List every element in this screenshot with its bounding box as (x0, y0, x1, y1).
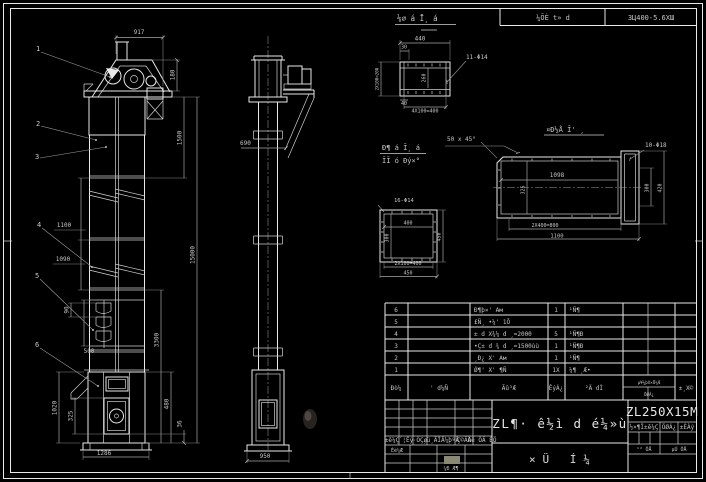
holes-label-16phi14: 16-Φ14 (394, 198, 415, 204)
detail-plate: ¤Ð½Å Ī' ¸ 50 x 45° 1098 325 300 420 2X40… (445, 125, 667, 241)
bom-row-name: ¸Ð¿ X' Ам (474, 355, 507, 362)
bom-header-name: Ãû³Æ (502, 385, 517, 392)
bom-row-name: ± d X¾¼ d ¸=2000 (474, 331, 532, 338)
dim-1090: 1090 (56, 256, 71, 263)
bom-row-qty: 1 (554, 343, 558, 350)
bom-row-qty: 5 (554, 331, 558, 338)
dim-300-plate: 300 (645, 183, 651, 192)
balloon-5: 5 (35, 272, 39, 280)
bom-row-qty: 1X (552, 367, 560, 374)
weight-label: ÖØÁ¿ (662, 424, 676, 431)
bom-row-name: Ð¶þ×' Ам (474, 307, 503, 314)
header-mid-cell: ¼ÕÈ t» d (536, 13, 570, 22)
balloon-callouts: 1 2 3 4 5 6 (35, 45, 111, 387)
bom-row-material: ¹Ñ¶Ð (569, 331, 584, 338)
model-number: ZL250X15M (626, 404, 698, 419)
bom-row-no: 4 (394, 331, 398, 338)
dim-3300: 3300 (154, 332, 161, 347)
side-view: 950 690 (240, 36, 317, 463)
dim-400: 400 (403, 221, 412, 227)
square-caption-1: Ð¶ á Ī¸ á (382, 143, 420, 152)
dim-bot1: 2X100=400 (394, 261, 421, 267)
scale-label: ±ÈÀý (680, 423, 695, 431)
dim-36: 36 (177, 420, 184, 428)
holes-label-11phi14: 11-Φ14 (466, 54, 488, 61)
dim-bot2: 450 (403, 271, 412, 277)
dim-950: 950 (260, 453, 271, 460)
square-caption-2: ĪĪ ó Ðý×° (382, 156, 420, 165)
dim-917: 917 (134, 29, 145, 36)
dim-260: 260 (422, 73, 428, 82)
dim-325: 325 (68, 410, 75, 421)
check-label: ¼Ð Æ¶ (443, 466, 458, 472)
detail-square: Ð¶ á Ī¸ á ĪĪ ó Ðý×° 16-Φ14 400 300 450 2… (378, 143, 446, 278)
bom-header-code: ' d¼Ñ (430, 385, 448, 392)
dim-1100: 1100 (57, 222, 72, 229)
balloon-2: 2 (36, 120, 40, 128)
dim-1500: 1500 (177, 130, 184, 145)
dim-420: 420 (658, 183, 664, 192)
bom-row-no: 3 (394, 343, 398, 350)
view-label: ⅛∅ á Ī¸ á (397, 14, 438, 23)
dim-1100-plate: 1100 (550, 234, 563, 240)
bom-row-material: ¹Ñ¶Ð (569, 343, 584, 350)
bom-row-material: ¼¶ ¸Æ• (569, 367, 591, 374)
dim-left: 2X100=200 (375, 67, 380, 90)
sheet-number: µÚ ÕÅ (671, 446, 686, 453)
detail-flange: 440 30 2X100=200 260 40 4X100=400 11-Φ14 (375, 36, 489, 115)
title-block: ±ê¼Ç ´¦Êý ·ÖÇø ¸ü¸ÄÎÄ¼þºÅ Ç©Ãû Äê ÔÂ ÈÕ … (385, 400, 698, 473)
dim-30: 30 (401, 45, 407, 51)
bom-row-no: 6 (394, 307, 398, 314)
bom-row-no: 2 (394, 355, 398, 362)
balloon-4: 4 (37, 221, 41, 229)
plate-caption: ¤Ð½Å Ī' ¸ (546, 125, 584, 134)
balloon-6: 6 (35, 341, 39, 349)
header-strip: ¼ÕÈ t» d 3Ц400-5.6ХШ ⅛∅ á Ī¸ á (395, 9, 697, 31)
bom-row-name: •Ç± d ¾ d ¸=1500ùù (474, 343, 539, 350)
sheets-total: ¹² ÕÅ (636, 446, 651, 453)
rev-header-mark: ±ê¼Ç (385, 437, 400, 444)
dim-180: 180 (170, 69, 177, 80)
bom-row-material: ¹Ñ¶ (569, 307, 580, 314)
dim-300: 300 (385, 233, 391, 242)
dim-325-plate: 325 (521, 185, 527, 194)
bom-header-material: ²Ä dÌ (585, 385, 603, 392)
bom-row-material: ¹Ñ¶ (569, 355, 580, 362)
chamfer-label: 50 x 45° (447, 136, 476, 143)
dim-500: 500 (84, 348, 95, 355)
dim-15000: 15000 (190, 246, 197, 264)
stage-mark-label: ½×¶Î±ê¼Ç (630, 424, 659, 431)
dim-690: 690 (240, 140, 251, 147)
dim-2x400: 2X400=800 (531, 223, 558, 229)
bom-row-no: 5 (394, 319, 398, 326)
bom-row-name: £Ñ¸ •¼' 1Õ (474, 319, 511, 326)
drawing-title: ZL¶· ê½ì d é¼»ù (492, 416, 627, 431)
stamp-mark (444, 456, 460, 464)
dim-bottom: 4X100=400 (411, 109, 438, 115)
dim-1098: 1098 (550, 172, 565, 179)
dim-40: 40 (401, 101, 407, 107)
drawing-canvas: ¼ÕÈ t» d 3Ц400-5.6ХШ ⅛∅ á Ī¸ á (0, 0, 706, 482)
dim-450-right: 450 (437, 232, 443, 241)
dim-1286: 1286 (97, 450, 112, 457)
balloon-1: 1 (36, 45, 40, 53)
bom-row-qty: 1 (554, 307, 558, 314)
header-right-cell: 3Ц400-5.6ХШ (628, 14, 674, 22)
bom-header-remark: ±¸X© (679, 385, 694, 392)
sheet-frame (3, 4, 703, 480)
bom-header-qty: ÊýÁ¿ (549, 384, 563, 392)
bom-header-no: Ðò¼ (391, 385, 402, 392)
dim-1020: 1020 (52, 400, 59, 415)
balloon-3: 3 (35, 153, 39, 161)
cad-sheet: ¼ÕÈ t» d 3Ц400-5.6ХШ ⅛∅ á Ī¸ á (0, 0, 706, 482)
bom-header-weight-bottom: ÖØÁ¿ (644, 392, 655, 397)
bom-header-weight-top: µ¥¼þX×Ü¼Æ (638, 380, 661, 386)
front-view: 917 180 1500 15000 1100 1090 90 500 1020… (35, 29, 200, 460)
smudge-highlight (305, 411, 312, 421)
bom-row-no: 1 (394, 367, 398, 374)
holes-label-10phi18: 10-Φ18 (645, 142, 667, 149)
bom-row-qty: 1 (554, 355, 558, 362)
dim-440: 440 (415, 36, 426, 43)
dim-480: 480 (164, 398, 171, 409)
bom-row-name: Ǿ¶' X' ¶Ñ (474, 367, 507, 374)
design-label: Éè¼Æ (391, 446, 403, 454)
rev-header-count: ´¦Êý (399, 436, 414, 444)
rev-header-docno: ¸ü¸ÄÎÄ¼þºÅ (423, 437, 460, 444)
drawing-subtitle: ×Ü Í¼ (529, 453, 597, 466)
